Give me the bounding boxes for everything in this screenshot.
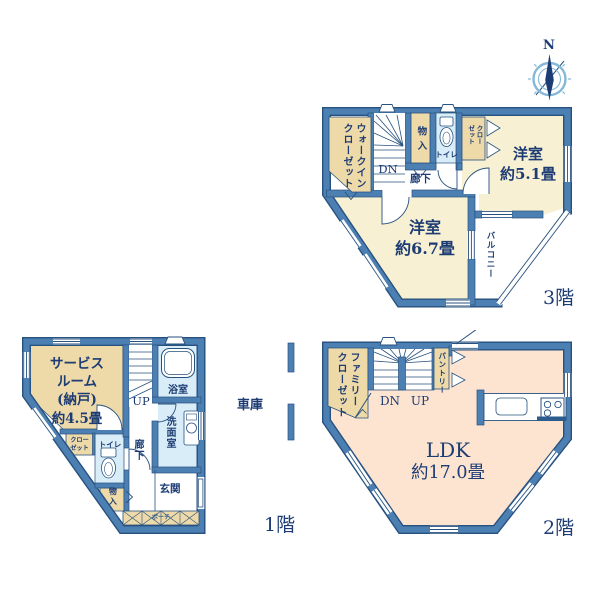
toilet-window-bump-3f: [440, 105, 456, 113]
floor3-label: 3階: [543, 286, 574, 311]
washroom-label: 洗面室: [163, 416, 176, 460]
hallway-label-3f: 廊下: [404, 173, 437, 187]
stairs-dn-label-3f: DN: [375, 162, 401, 177]
walkin-closet-label: ウォークインクローゼット: [340, 123, 366, 195]
storage-label-3f: 物入: [414, 126, 426, 162]
stairs-dn-label-2f: DN: [377, 394, 403, 410]
garage-label: 車庫: [232, 398, 268, 415]
kitchen-counter: [477, 390, 566, 425]
pantry-label: パントリー: [437, 352, 447, 390]
floorplan-canvas: N ウォークインクローゼット DN 物入 トイレ クローゼット 廊下 洋室約5.…: [0, 0, 600, 600]
porch-label: ポーチ: [145, 514, 177, 522]
toilet-label-3f: トイレ: [434, 150, 459, 160]
stairs-up-label-2f: UP: [407, 394, 433, 410]
hallway-label-1f: 廊下: [131, 439, 144, 467]
bath-window-bump: [165, 337, 185, 344]
stairs-up-label-1f: UP: [127, 394, 155, 409]
family-closet-label: ファミリークローゼット: [334, 352, 360, 418]
stairs-3f: [374, 113, 405, 190]
stair-window-bump-3f: [379, 105, 395, 113]
compass-needle-icon: [545, 54, 554, 100]
top-door-2f: [452, 330, 478, 349]
toilet-label-1f: トイレ: [96, 440, 124, 450]
toilet-icon-1f: [101, 448, 116, 478]
bathtub-icon: [162, 349, 195, 378]
sink-icon: [184, 411, 199, 445]
balcony-label: バルコニー: [484, 231, 495, 283]
stove-icon: [537, 398, 566, 421]
stair-window-bump-2f: [380, 338, 397, 346]
closet-label-3f: クローゼット: [466, 125, 483, 155]
service-room-label: サービスルーム (納戸)約4.5畳: [35, 355, 119, 428]
room-6-7-label: 洋室約6.7畳: [383, 218, 467, 260]
front-door-leaf: [198, 479, 203, 507]
stairs-2f: [374, 349, 432, 390]
floor1-label: 1階: [264, 513, 295, 538]
floor2-label: 2階: [543, 516, 574, 541]
ldk-label: LDK 約17.0畳: [395, 438, 501, 485]
compass-north-label: N: [543, 38, 555, 55]
closet-label-1f: クローゼット: [66, 437, 93, 453]
room-5-1-label: 洋室約5.1畳: [489, 145, 567, 184]
bath-label: 浴室: [161, 384, 195, 397]
entrance-label: 玄関: [152, 483, 188, 497]
toilet-icon-3f: [440, 117, 453, 147]
storage-label-1f: 物入: [108, 487, 118, 509]
garage-wall-stubs: [288, 343, 294, 440]
compass-icon: [528, 54, 571, 100]
